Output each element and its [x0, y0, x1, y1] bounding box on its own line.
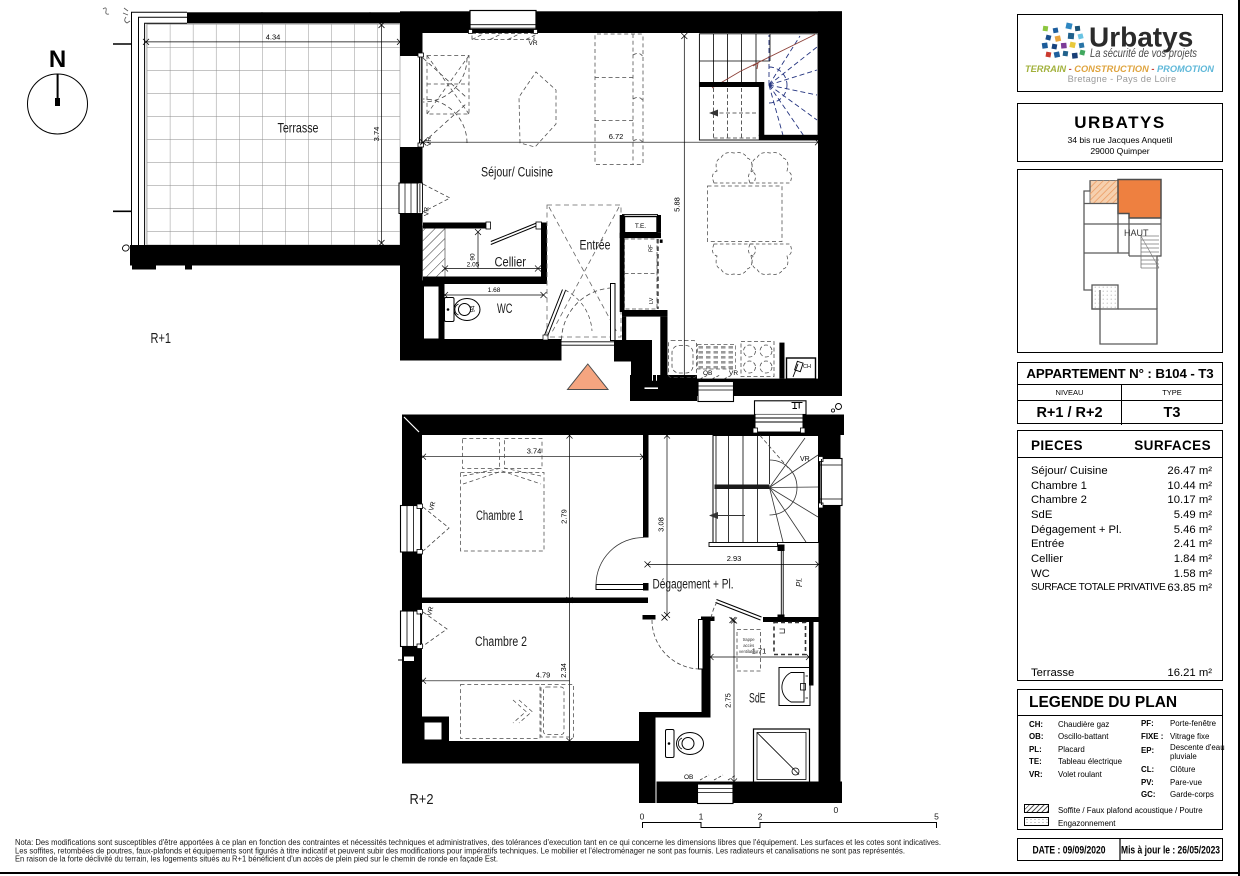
svg-text:En raison de la forte déclivit: En raison de la forte déclivité du terra… — [15, 855, 498, 864]
svg-text:HAUT: HAUT — [1124, 228, 1149, 238]
svg-text:WC: WC — [497, 301, 513, 316]
svg-text:Bretagne - Pays de Loire: Bretagne - Pays de Loire — [1068, 74, 1177, 84]
svg-text:1.68: 1.68 — [488, 287, 501, 294]
svg-text:OB: OB — [684, 774, 693, 781]
svg-text:Chambre 2: Chambre 2 — [475, 634, 527, 649]
svg-text:Chambre 1: Chambre 1 — [476, 508, 524, 523]
svg-text:Dégagement + Pl.: Dégagement + Pl. — [653, 577, 734, 592]
svg-text:4.79: 4.79 — [536, 671, 551, 680]
svg-text:4.34: 4.34 — [266, 32, 281, 41]
svg-text:3.08: 3.08 — [657, 517, 666, 532]
svg-text:0: 0 — [834, 805, 839, 815]
svg-text:RF: RF — [649, 244, 655, 252]
svg-text:Séjour/ Cuisine: Séjour/ Cuisine — [481, 165, 553, 180]
svg-text:5.88: 5.88 — [673, 197, 682, 212]
svg-text:R+1: R+1 — [151, 330, 172, 347]
svg-text:Terrasse: Terrasse — [278, 121, 319, 136]
svg-text:La sécurité de vos projets: La sécurité de vos projets — [1090, 46, 1197, 60]
svg-text:5: 5 — [934, 812, 939, 822]
svg-text:DATE : 09/09/2020: DATE : 09/09/2020 — [1033, 844, 1106, 856]
svg-text:Entrée: Entrée — [580, 238, 611, 253]
svg-text:N: N — [49, 46, 66, 73]
svg-text:2.75: 2.75 — [724, 693, 733, 708]
svg-text:2.05: 2.05 — [467, 262, 480, 269]
svg-text:94: 94 — [471, 305, 477, 312]
svg-text:VR: VR — [428, 501, 437, 512]
svg-text:TERRAIN - CONSTRUCTION - PROMO: TERRAIN - CONSTRUCTION - PROMOTION — [1025, 64, 1214, 74]
svg-text:2.93: 2.93 — [727, 554, 742, 563]
svg-text:VR: VR — [426, 606, 435, 617]
svg-text:1: 1 — [699, 812, 704, 822]
svg-text:Mis à jour le : 26/05/2023: Mis à jour le : 26/05/2023 — [1121, 844, 1220, 856]
svg-text:OB: OB — [703, 370, 712, 377]
svg-text:Pl.: Pl. — [795, 578, 804, 587]
svg-text:2.79: 2.79 — [560, 509, 569, 524]
svg-text:VR: VR — [426, 137, 433, 146]
svg-text:CH: CH — [803, 364, 811, 370]
svg-text:SdE: SdE — [749, 691, 766, 706]
svg-text:2: 2 — [758, 812, 763, 822]
svg-text:Cellier: Cellier — [495, 255, 527, 270]
svg-text:trappe: trappe — [743, 637, 756, 642]
svg-text:0: 0 — [640, 812, 645, 822]
svg-text:accès: accès — [743, 643, 754, 648]
svg-text:T.E.: T.E. — [635, 223, 646, 230]
svg-text:3.74: 3.74 — [527, 447, 542, 456]
svg-text:2.34: 2.34 — [559, 663, 568, 678]
svg-text:3.74: 3.74 — [372, 127, 381, 142]
svg-text:R+2: R+2 — [410, 791, 434, 808]
svg-text:ventilateur: ventilateur — [739, 649, 759, 654]
svg-text:LV: LV — [649, 297, 655, 304]
svg-text:VR: VR — [800, 456, 810, 463]
svg-text:90: 90 — [470, 253, 477, 261]
svg-text:6.72: 6.72 — [609, 132, 624, 141]
svg-text:VR: VR — [528, 40, 537, 47]
